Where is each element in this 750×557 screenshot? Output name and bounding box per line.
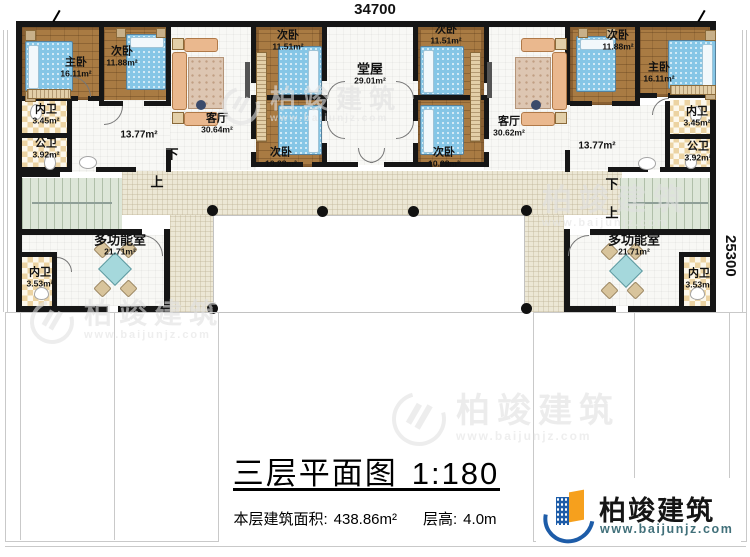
terrace-right-band [523,215,564,312]
side-table [172,38,184,50]
wall [166,21,171,105]
room-label-bath-left-1: 内卫3.45m² [33,104,60,125]
floor-plan-canvas: 主卧16.11m² 次卧11.88m² 内卫3.45m² 公卫3.92m² 客厅… [0,0,750,557]
room-label-tangwu: 堂屋29.01m² [354,62,386,85]
plant [531,100,541,110]
floor-height-label: 层高: [423,511,457,528]
nightstand [578,28,588,38]
wall [565,150,570,172]
room-label-hall-right: 13.77m² [578,142,615,153]
wall [570,101,592,106]
brand-logo-icon [545,489,593,537]
column [317,206,328,217]
wardrobe [27,89,71,99]
room-label-bedroom-cl-bottom: 次卧10.28m² [265,147,297,168]
nightstand [116,28,126,38]
bed [420,46,464,95]
side-table [555,112,567,124]
wall [682,252,716,257]
pillow [702,44,713,87]
eave-line [7,30,8,312]
wall [484,97,489,139]
toilet [34,287,49,300]
lower-structure-outline [5,312,219,542]
plan-scale: 1:180 [412,456,500,491]
wall [96,167,136,172]
grid-line [114,312,115,540]
sofa [552,52,567,110]
wall [413,97,418,121]
wall [384,162,418,167]
wall [67,101,72,172]
pillow [28,45,39,89]
room-label-bedroom-cl-top: 次卧11.51m² [272,30,303,51]
wall [679,252,684,312]
bed [668,40,716,89]
grid-line [5,546,746,547]
grid-line [20,312,21,540]
stair-label-down-right: 下 [605,174,618,193]
sofa [172,52,187,110]
room-label-bath-left-2: 公卫3.92m² [33,138,60,159]
pillow [308,50,319,93]
room-label-bath-right-2: 公卫3.92m² [685,141,712,162]
column [521,303,532,314]
nightstand [25,30,36,41]
column [408,206,419,217]
wall [164,229,170,312]
wall [144,101,171,106]
stair-label-up-left: 上 [150,172,163,191]
stair-label-down-left: 下 [165,144,178,163]
stair-rail-left [32,202,112,204]
nightstand [156,28,166,38]
title-underline [233,488,500,491]
courtyard-void [213,215,525,313]
plan-title: 三层平面图1:180 [233,448,500,493]
wall [16,21,716,27]
sofa [184,38,218,52]
side-table [555,38,567,50]
wardrobe [256,52,267,142]
pillow [308,109,319,153]
floor-area-value: 438.86m² [334,511,397,528]
wall [322,97,327,121]
room-label-living-left: 客厅30.64m² [201,113,233,134]
room-label-multiroom-left: 多功能室21.71m² [94,233,146,256]
pillow [423,50,434,93]
floor-height-value: 4.0m [463,511,496,528]
terrace-left-band [170,215,213,312]
wall [670,134,716,139]
wall [564,229,570,312]
plan-title-text: 三层平面图 [233,456,398,491]
plant [196,100,206,110]
eave-line [746,30,747,312]
eave-line [742,30,743,312]
room-label-bedroom-cr-top: 次卧11.51m² [430,24,461,45]
sink [79,156,97,169]
watermark-logo-icon [382,382,456,456]
bed [278,46,322,95]
terrace-top-band [122,171,622,215]
wall [22,252,56,257]
wall [99,21,104,101]
room-label-bedroom-cr-bottom: 次卧10.28m² [428,147,460,168]
sofa [521,38,555,52]
eave-line [3,30,4,312]
wall [322,21,327,81]
wall [322,162,358,167]
nightstand [705,30,716,41]
logo-building-orange [569,490,584,523]
wall [635,21,640,101]
dimension-width: 34700 [354,1,396,18]
wall [612,101,640,106]
room-label-bedroom-right: 次卧11.88m² [602,30,633,51]
side-table [172,112,184,124]
room-label-bedroom-left: 次卧11.88m² [106,46,137,67]
brand-url: www.baijunjz.com [600,522,733,536]
room-label-bath-bottom-left: 内卫3.53m² [27,267,54,288]
room-label-hall-left: 13.77m² [120,131,157,142]
room-label-living-right: 客厅30.62m² [493,116,525,137]
stair-rail-right [628,202,708,204]
column [207,205,218,216]
room-label-multiroom-right: 多功能室21.71m² [608,233,660,256]
wall [635,93,657,98]
logo-building-blue [556,497,569,525]
wall [413,21,418,81]
room-label-bath-bottom-right: 内卫3.53m² [686,268,713,289]
tv-cabinet [487,62,492,98]
dimension-height: 25300 [722,235,739,277]
rug [188,57,224,109]
room-label-master-right: 主卧16.11m² [643,62,674,83]
sink [638,157,656,170]
wall [16,172,60,177]
stair-label-up-right: 上 [605,203,618,222]
room-label-bath-right-1: 内卫3.45m² [684,106,711,127]
column [521,205,532,216]
wardrobe [670,85,716,95]
wardrobe [470,52,481,142]
door-arc [652,98,669,115]
floor-area-label: 本层建筑面积: [233,511,327,528]
sofa [521,112,555,126]
tv-cabinet [245,62,250,98]
plan-info: 本层建筑面积:438.86m²层高:4.0m [233,508,502,529]
room-label-master-left: 主卧16.11m² [60,57,91,78]
